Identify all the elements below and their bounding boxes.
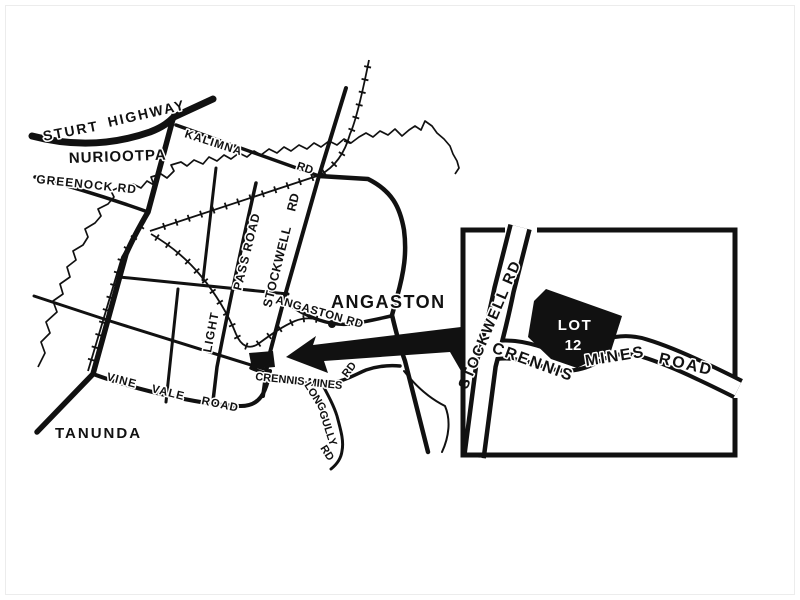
tanunda-label: TANUNDA [55, 425, 142, 442]
railway-tick [225, 203, 227, 210]
railway-tick [362, 79, 369, 80]
grid-road-horizontal-lower [34, 296, 267, 370]
railway-tick [359, 92, 366, 94]
crennis-rd-suffix-main: RD [340, 360, 359, 380]
railway-tick [356, 104, 363, 106]
angaston-town-label: ANGASTON [331, 292, 446, 312]
vale-road-suffix-label: ROAD [200, 395, 240, 415]
kalimna-rd-suffix-label: RD [295, 160, 315, 177]
gully-rd-suffix-label: RD [317, 443, 336, 463]
railway-tick [88, 359, 95, 361]
railway-tick [348, 129, 355, 132]
lot-12-label-line1: LOT [558, 317, 593, 334]
railway-tick [175, 219, 177, 226]
railway-tick [303, 315, 304, 322]
railway-tick [262, 190, 264, 197]
railway-tick [200, 211, 202, 218]
inset-map: STOCKWELL RD CRENNIS MINES ROAD LOT 12 [455, 227, 738, 458]
stockwell-rd-suffix-main: RD [284, 192, 302, 213]
railway-tick [364, 66, 371, 67]
lot-marker [249, 351, 275, 369]
grid-road-vertical-upper [203, 168, 216, 280]
railway-tick [274, 186, 276, 193]
main-map: STURT HIGHWAY NURIOOTPA KALIMNA RD GREEN… [32, 60, 459, 469]
railway-tick [237, 199, 239, 206]
lot-12-label-line2: 12 [565, 337, 582, 354]
site-location-map: STURT HIGHWAY NURIOOTPA KALIMNA RD GREEN… [0, 0, 800, 600]
railway-tick [188, 215, 190, 222]
railway-tick [344, 141, 351, 143]
railway-tick [352, 117, 359, 119]
crennis-mines-label-main: CRENNIS MINES [255, 371, 343, 392]
railway-tick [245, 343, 247, 350]
vine-label: VINE [105, 371, 138, 391]
grid-road-vertical-lower [166, 289, 178, 402]
light-label: LIGHT [200, 311, 222, 354]
railway-tick [299, 178, 301, 185]
vale-label: VALE [150, 383, 186, 403]
pass-road-label: PASS ROAD [230, 211, 263, 291]
railway-tick [286, 182, 288, 189]
nuriootpa-label: NURIOOTPA [69, 147, 167, 167]
kalimna-road-label: KALIMNA [183, 128, 244, 158]
railway-tick [163, 223, 165, 230]
location-map-image: STURT HIGHWAY NURIOOTPA KALIMNA RD GREEN… [0, 0, 800, 600]
